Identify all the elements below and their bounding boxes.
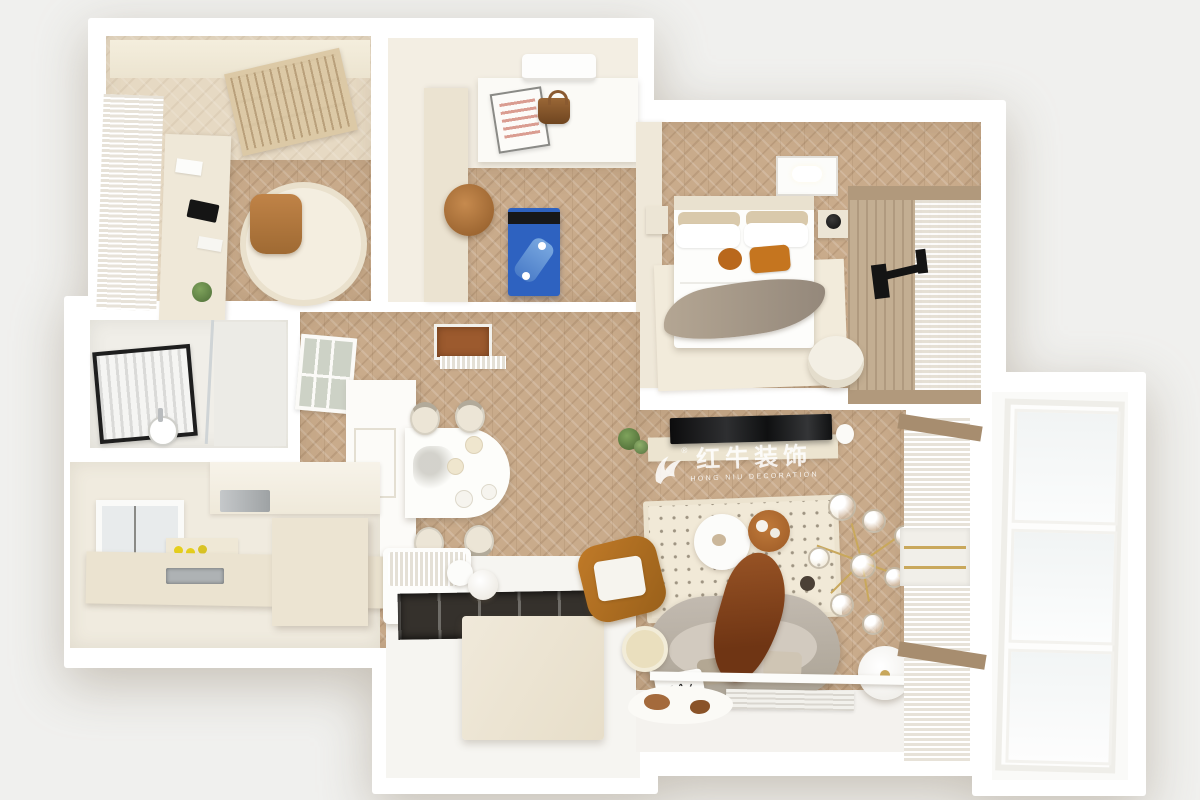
skylight bbox=[434, 324, 492, 360]
orange-lumbar-pillow bbox=[749, 244, 791, 273]
bedroom-curtain bbox=[915, 200, 981, 390]
range-hood bbox=[220, 490, 270, 512]
brand-name-cn: 红牛装饰 bbox=[689, 443, 819, 473]
living-tv bbox=[670, 414, 833, 444]
glass-pane-3 bbox=[1005, 649, 1114, 766]
chandelier-bubble-5 bbox=[850, 553, 876, 579]
study-plant bbox=[192, 282, 212, 302]
bathroom-mirror bbox=[92, 344, 198, 444]
bedroom-tv-wall bbox=[848, 186, 981, 404]
frame-art bbox=[499, 97, 540, 138]
chandelier-bubble-1 bbox=[828, 493, 856, 521]
watermark: ® 红牛装饰 HONG NIU DECORATION bbox=[647, 443, 838, 490]
kitchen-island bbox=[272, 518, 368, 626]
glass-pane-2 bbox=[1008, 529, 1117, 646]
bed-headboard bbox=[674, 196, 814, 210]
handbag-handle bbox=[548, 90, 568, 105]
floorplan-render: ® 红牛装饰 HONG NIU DECORATION bbox=[0, 0, 1200, 800]
bean-bag bbox=[444, 184, 494, 236]
ceiling-light-fixture bbox=[792, 166, 822, 182]
air-conditioner bbox=[522, 54, 596, 81]
dining-chair-1 bbox=[410, 402, 440, 435]
dining-table bbox=[405, 428, 510, 518]
watermark-text: 红牛装饰 HONG NIU DECORATION bbox=[689, 443, 819, 482]
pillow-white-right bbox=[744, 223, 808, 247]
cowhide-rug bbox=[628, 686, 733, 724]
niche-shelf-1 bbox=[904, 546, 966, 549]
tray-cup-1 bbox=[756, 520, 768, 532]
balcony-glass-doors bbox=[995, 398, 1125, 773]
bedroom-ceiling-light bbox=[776, 156, 838, 196]
niche-shelf-2 bbox=[904, 566, 966, 569]
kitchen-sink bbox=[166, 568, 224, 584]
tv-wall-pelmet-top bbox=[848, 186, 981, 200]
plate-3 bbox=[455, 490, 473, 508]
console-vase bbox=[836, 424, 854, 444]
tv-wall-pelmet-bottom bbox=[848, 390, 981, 404]
glass-pane-1 bbox=[1012, 409, 1121, 526]
nightstand-speaker bbox=[826, 214, 841, 229]
treadmill bbox=[508, 208, 560, 296]
chandelier-bubble-2 bbox=[862, 509, 886, 533]
entry-cabinet-block bbox=[462, 616, 604, 740]
registered-mark: ® bbox=[681, 446, 687, 455]
tray-cup-2 bbox=[770, 528, 780, 538]
chandelier-bubble-7 bbox=[830, 593, 854, 617]
coffee-table-tray bbox=[712, 534, 726, 546]
treadmill-dot1 bbox=[538, 242, 546, 250]
treadmill-dot2 bbox=[522, 272, 530, 280]
living-plant-2 bbox=[634, 440, 648, 454]
cowhide-spot-1 bbox=[644, 694, 670, 710]
shower-floor bbox=[214, 322, 286, 446]
entry-pouf bbox=[468, 570, 498, 600]
wood-tray-table bbox=[748, 510, 790, 552]
hall-doormat bbox=[440, 356, 506, 369]
plate-2 bbox=[447, 458, 464, 475]
bedroom-armchair bbox=[808, 336, 864, 388]
chandelier-bubble-4 bbox=[808, 547, 830, 569]
cowhide-spot-2 bbox=[690, 700, 710, 714]
bathroom-faucet bbox=[158, 408, 163, 422]
side-table bbox=[622, 626, 668, 672]
living-doormat bbox=[726, 689, 854, 711]
curtain-niche bbox=[900, 528, 970, 586]
living-curtain bbox=[904, 418, 970, 763]
tv-bracket-plate bbox=[871, 264, 890, 300]
study-desk-chair bbox=[250, 194, 302, 254]
tv-bracket bbox=[869, 247, 930, 299]
plate-1 bbox=[465, 436, 483, 454]
lounge-chair-cushion bbox=[593, 555, 647, 602]
orange-round-cushion bbox=[718, 248, 742, 270]
bathroom-sink bbox=[148, 416, 178, 446]
plate-4 bbox=[481, 484, 497, 500]
pillow-white-left bbox=[676, 224, 740, 248]
nightstand-left bbox=[646, 206, 668, 234]
treadmill-belt bbox=[512, 235, 557, 285]
chandelier-bubble-8 bbox=[862, 613, 884, 635]
treadmill-console bbox=[508, 212, 560, 224]
dining-chair-2 bbox=[455, 400, 485, 433]
study-curtain bbox=[96, 94, 163, 311]
